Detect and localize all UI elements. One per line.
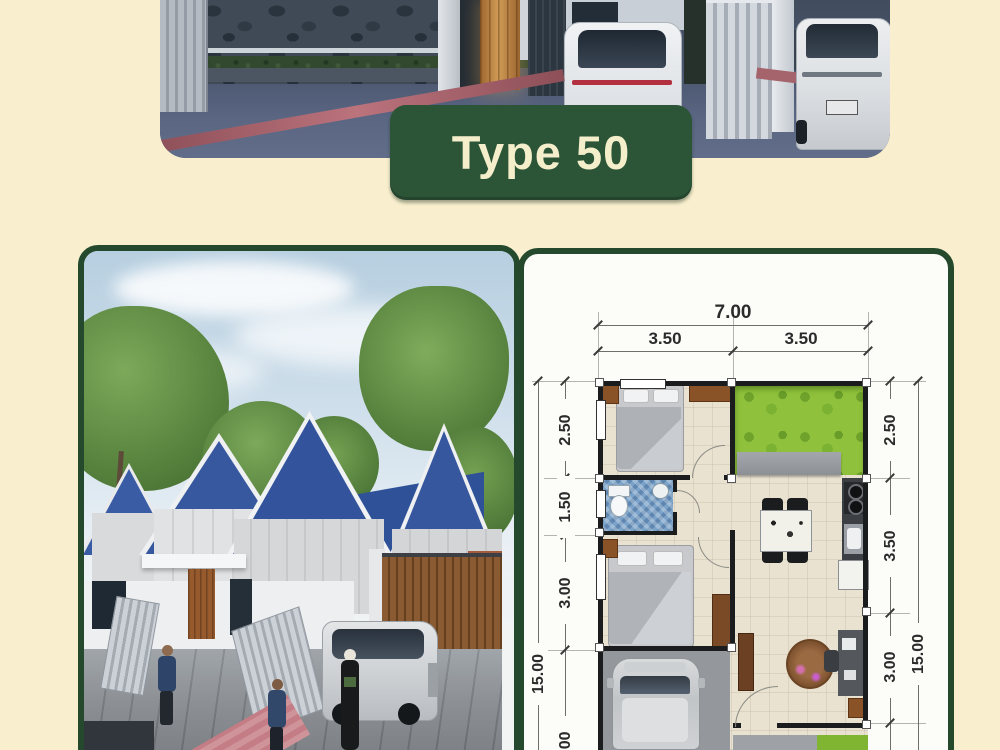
floorplan-card: 7.00 3.50 3.50 2.50 1.50 3.00 3.00 15.00… <box>518 248 954 750</box>
door-planks <box>480 0 520 90</box>
flower-decor <box>796 665 805 674</box>
license-plate <box>826 100 858 115</box>
car-windshield <box>620 676 690 694</box>
carport-car <box>612 658 700 750</box>
column-marker <box>595 378 604 387</box>
left-photo-card <box>78 245 520 750</box>
bathroom-sink <box>652 483 669 499</box>
dim-line-width-total <box>598 325 868 326</box>
desk-item <box>842 638 856 650</box>
wall-bedroom2-bottom <box>598 646 735 651</box>
blanket <box>609 572 691 644</box>
dim-label-width-left: 3.50 <box>635 330 695 348</box>
car-light-strip <box>572 80 672 85</box>
wall-center-upper <box>730 381 735 480</box>
canopy <box>142 554 246 568</box>
dim-label-right-3: 3.00 <box>882 636 900 698</box>
person-head <box>162 645 173 656</box>
wooden-door <box>188 569 215 639</box>
dim-label-left-total: 15.00 <box>530 643 548 705</box>
car-light-strip <box>802 72 882 77</box>
column-marker <box>727 643 736 652</box>
dark-road-corner <box>84 721 154 750</box>
white-car-sedan <box>796 18 890 150</box>
gate-pillar <box>460 0 480 94</box>
column-marker <box>862 720 871 729</box>
car-windshield <box>806 24 878 58</box>
column-marker <box>862 474 871 483</box>
white-pillar <box>772 0 794 132</box>
dresser <box>689 384 731 402</box>
pillow <box>623 389 649 403</box>
desk-item <box>844 670 856 680</box>
bed <box>608 545 694 647</box>
person-legs <box>160 691 173 725</box>
burner <box>848 499 864 515</box>
real-estate-flyer: Type 50 <box>0 0 1000 750</box>
wardrobe <box>712 594 732 648</box>
column-marker <box>595 643 604 652</box>
person-robe <box>341 660 359 750</box>
wall-bathroom-right <box>673 512 677 531</box>
dim-label-right-2: 3.50 <box>882 515 900 577</box>
suv-grille <box>428 663 438 697</box>
hedge-gap <box>684 0 706 84</box>
window <box>596 490 606 518</box>
person-sash <box>344 677 356 687</box>
wall-right <box>863 381 868 728</box>
window <box>596 400 606 440</box>
column-marker <box>727 378 736 387</box>
car-mirror <box>607 678 614 688</box>
dim-label-left-4: 3.00 <box>557 716 575 750</box>
car-mirror <box>698 678 705 688</box>
dim-label-left-2: 1.50 <box>557 476 575 538</box>
corrugated-fence-left <box>160 0 208 112</box>
column-marker <box>862 607 871 616</box>
desk-chair <box>824 650 839 672</box>
toilet-bowl <box>610 495 628 517</box>
person-torso <box>158 656 176 692</box>
dark-window <box>572 2 618 24</box>
terrace-canopy <box>737 452 841 475</box>
white-pillar <box>438 0 460 96</box>
person-legs <box>270 727 283 750</box>
suv-wheel <box>398 703 420 725</box>
column-marker <box>862 378 871 387</box>
dim-label-left-1: 2.50 <box>557 399 575 461</box>
wall-sliver <box>520 0 528 60</box>
person <box>336 649 364 750</box>
pillow <box>653 389 679 403</box>
pillow <box>653 551 683 566</box>
bed <box>616 384 684 472</box>
window <box>620 379 666 389</box>
extension-line <box>544 650 598 651</box>
type-badge-label: Type 50 <box>452 125 631 180</box>
person <box>264 679 290 750</box>
pillow <box>617 551 647 566</box>
type-badge: Type 50 <box>390 105 692 200</box>
dim-label-right-1: 2.50 <box>882 399 900 461</box>
stove <box>844 482 865 514</box>
sink-basin <box>847 528 861 549</box>
car-hood <box>624 662 686 672</box>
blanket <box>617 407 681 469</box>
wall-bathroom-bottom <box>598 531 677 535</box>
dim-line-right-total <box>918 381 919 750</box>
flower-decor <box>812 673 820 681</box>
dim-label-width-total: 7.00 <box>703 304 763 322</box>
rear-path <box>733 735 817 750</box>
wall-bottom <box>777 723 868 728</box>
car-roof <box>622 698 688 742</box>
dim-label-right-total: 15.00 <box>910 623 928 685</box>
wall-center-lower <box>730 530 735 650</box>
car-wheel <box>796 120 807 144</box>
kitchen-sink <box>844 524 865 554</box>
person-head <box>272 679 283 690</box>
person <box>154 645 180 725</box>
column-marker <box>595 528 604 537</box>
dim-label-width-right: 3.50 <box>771 330 831 348</box>
tv-cabinet <box>738 633 754 691</box>
person-torso <box>268 690 286 728</box>
window <box>596 554 606 600</box>
column-marker <box>595 474 604 483</box>
dim-label-left-3: 3.00 <box>557 562 575 624</box>
column-marker <box>727 474 736 483</box>
car-windshield <box>578 30 666 68</box>
rear-grass <box>817 735 868 750</box>
burner <box>848 484 864 500</box>
dining-table <box>760 510 812 552</box>
